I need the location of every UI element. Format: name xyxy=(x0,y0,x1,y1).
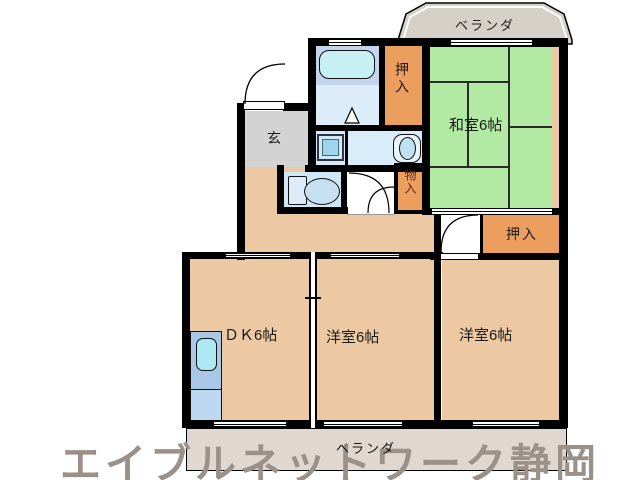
wall xyxy=(308,38,430,46)
dk-label: ＤＫ6帖 xyxy=(224,328,277,343)
floor-plan: ベランダ xyxy=(0,0,640,480)
entrance-door-panel xyxy=(243,101,285,110)
sliding-door xyxy=(330,253,400,258)
window xyxy=(328,39,362,46)
washitsu-label: 和室6帖 xyxy=(449,118,502,133)
western-right-label: 洋室6帖 xyxy=(459,328,512,343)
tatami-line xyxy=(510,126,552,128)
window xyxy=(472,421,540,427)
veranda-bottom-label: ベランダ xyxy=(336,438,396,457)
window xyxy=(213,421,287,427)
kitchen-counter xyxy=(191,389,221,420)
wall xyxy=(308,38,316,172)
washbasin-bowl xyxy=(399,137,416,160)
doorway-gap xyxy=(441,254,478,259)
toilet-bowl-icon xyxy=(304,178,340,205)
bathtub-icon xyxy=(319,50,375,79)
washitsu-edge-strip xyxy=(552,46,559,208)
wall xyxy=(434,215,441,428)
closet-bottom-label: 押入 xyxy=(506,227,538,241)
wall xyxy=(237,103,245,260)
closet-top-label: 押入 xyxy=(395,62,409,126)
wall xyxy=(559,38,568,428)
storage-label: 物入 xyxy=(404,169,416,215)
veranda-top-label: ベランダ xyxy=(455,15,515,34)
partition-dk-western xyxy=(309,252,317,428)
washing-machine-icon xyxy=(317,134,344,161)
entrance-door-arc xyxy=(245,64,285,104)
bathroom-floor xyxy=(316,85,379,125)
window xyxy=(450,39,533,46)
western-center-label: 洋室6帖 xyxy=(326,330,379,345)
genkan-label: 玄 xyxy=(267,131,281,145)
wall xyxy=(277,207,348,214)
wall xyxy=(308,125,430,131)
washing-machine-drum xyxy=(322,139,339,156)
tatami-line xyxy=(430,81,510,83)
door-swing-area xyxy=(441,215,481,253)
tatami-line xyxy=(430,166,510,168)
kitchen-sink-icon xyxy=(196,338,217,371)
wall xyxy=(379,44,385,128)
wall xyxy=(341,165,347,214)
washitsu-slider-line xyxy=(432,211,552,212)
kitchen-unit-icon xyxy=(190,331,222,420)
window xyxy=(225,253,291,258)
partition-mark xyxy=(305,297,321,299)
wall xyxy=(182,252,190,428)
doors-area xyxy=(347,172,394,215)
wall xyxy=(345,128,348,168)
window xyxy=(323,421,403,427)
